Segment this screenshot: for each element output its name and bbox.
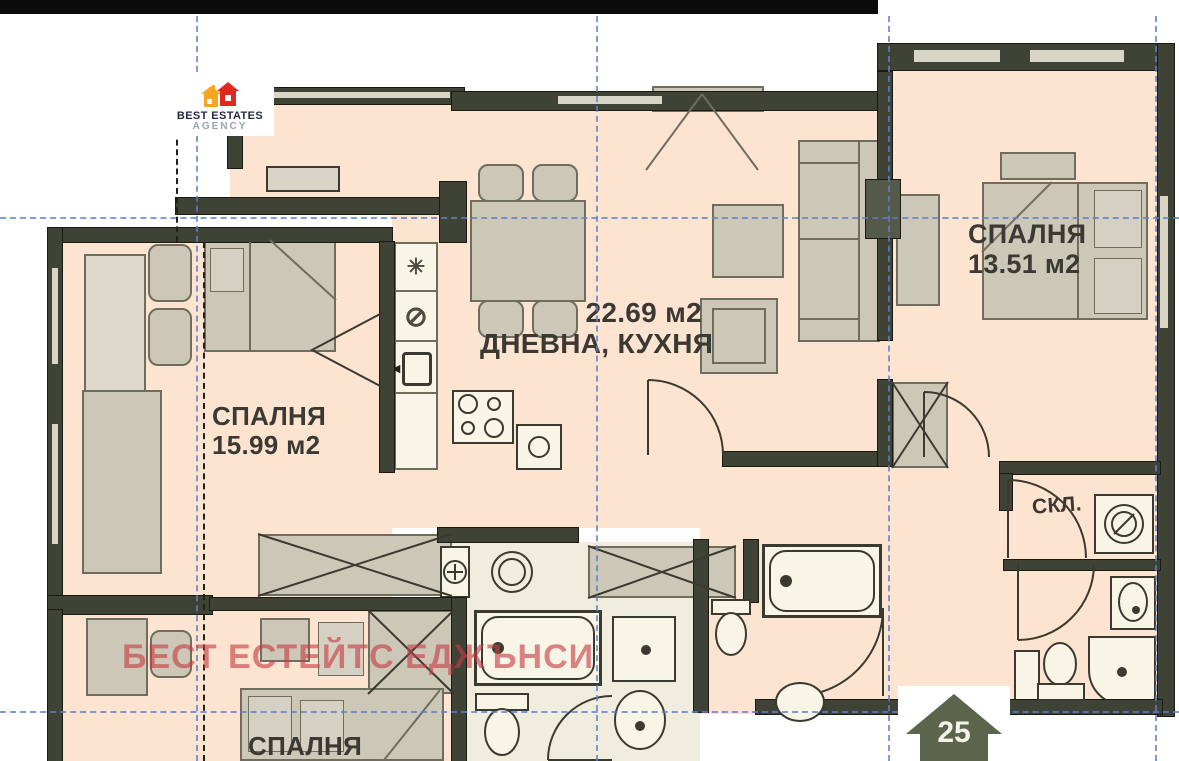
storage-top-wall xyxy=(1000,462,1160,474)
kitchen-cell-line xyxy=(394,290,438,292)
room-label-bedroom-bottom: СПАЛНЯ xyxy=(248,732,362,761)
stove xyxy=(452,390,514,444)
dining-chair xyxy=(532,164,578,202)
radiator xyxy=(266,166,340,192)
terrace-top-wall xyxy=(48,228,392,242)
shower xyxy=(1088,636,1156,706)
terrace-dashed-line xyxy=(203,242,205,761)
bedroom-living-divider xyxy=(380,242,394,472)
sofa-back-line xyxy=(858,142,860,340)
tv-stand xyxy=(896,194,940,306)
pillow xyxy=(210,248,244,292)
toilet-nook-wall xyxy=(744,540,758,602)
room-name: СПАЛНЯ xyxy=(212,402,326,431)
balcony-door-frame xyxy=(440,182,466,242)
room-label-bedroom-top-right: СПАЛНЯ 13.51 м2 xyxy=(968,220,1086,279)
hallway-wall xyxy=(723,452,885,466)
headboard-shelf xyxy=(1000,152,1076,180)
dining-chair xyxy=(478,164,524,202)
washing-machine xyxy=(1094,494,1154,554)
fridge-icon: ✳ xyxy=(394,254,438,280)
bath-divider-wall xyxy=(694,540,708,712)
room-area: 13.51 м2 xyxy=(968,250,1086,280)
kitchen-cell-line xyxy=(394,392,438,394)
bath-cabinet xyxy=(588,546,736,598)
agency-watermark: БЕСТ ЕСТЕЙТС ЕДЖЪНСИ xyxy=(122,638,594,677)
sofa-armrest-line xyxy=(800,318,860,320)
logo-text-line2: AGENCY xyxy=(193,121,248,132)
bedroom-bath-divider xyxy=(452,598,466,761)
dining-table xyxy=(470,200,586,302)
unit-marker: 25 xyxy=(898,686,1010,761)
terrace-table xyxy=(84,254,146,394)
bedroom-bottom-top-wall xyxy=(210,598,466,610)
kitchen-cell-line xyxy=(394,340,438,342)
agency-logo: BEST ESTATES AGENCY xyxy=(166,76,274,136)
room-label-storage: СКЛ. xyxy=(1031,492,1082,519)
balcony-bottom-wall xyxy=(176,198,466,214)
room-area: 15.99 м2 xyxy=(212,431,326,460)
unit-marker-number: 25 xyxy=(898,716,1010,750)
window xyxy=(1160,196,1168,328)
terrace-chair xyxy=(148,308,192,366)
kitchen-bath-wall xyxy=(438,528,578,542)
window xyxy=(558,96,662,104)
kitchen-sink-unit xyxy=(516,424,562,470)
terrace-bottom-wall xyxy=(48,596,212,614)
window xyxy=(914,50,1000,62)
window xyxy=(1030,50,1124,62)
grid-line-vertical xyxy=(1155,16,1157,761)
wardrobe xyxy=(892,382,948,468)
logo-houses-icon xyxy=(197,80,243,110)
pillow xyxy=(1094,258,1142,314)
kitchen-appliance-door xyxy=(402,352,432,386)
sofa-cushion-line xyxy=(800,238,860,240)
lounger xyxy=(82,390,162,574)
shower xyxy=(612,616,676,682)
left-outer-wall-lower xyxy=(48,610,62,761)
room-label-living-kitchen: 22.69 м2 ДНЕВНА, КУХНЯ xyxy=(480,298,702,360)
grid-line-vertical xyxy=(596,16,598,761)
window xyxy=(52,424,58,544)
wardrobe xyxy=(258,534,452,596)
sofa xyxy=(798,140,880,342)
floor-plan-canvas: ✳ ⊘ ◄ xyxy=(0,0,1179,761)
room-name: СПАЛНЯ xyxy=(968,220,1086,250)
bath-cabinet-small xyxy=(1014,650,1040,704)
balcony-railing xyxy=(250,92,450,98)
wall-column xyxy=(866,180,900,238)
room-name: ДНЕВНА, КУХНЯ xyxy=(480,329,702,360)
storage-left-wall xyxy=(1000,474,1012,510)
boundary-dashed-line xyxy=(176,130,178,242)
coffee-table xyxy=(712,204,784,278)
grid-line-vertical xyxy=(888,16,890,761)
storage-bath-divider xyxy=(1004,560,1160,570)
right-outer-wall xyxy=(1158,44,1174,716)
vanity-cabinet xyxy=(440,546,470,598)
hall-floor xyxy=(878,466,1002,712)
living-top-wall xyxy=(452,92,880,110)
window xyxy=(52,268,58,364)
armchair-seat xyxy=(712,308,766,364)
pillow xyxy=(1094,190,1142,248)
terrace-chair xyxy=(148,244,192,302)
room-label-bedroom-left: СПАЛНЯ 15.99 м2 xyxy=(212,402,326,459)
bathtub xyxy=(762,544,882,618)
bath-sink-cabinet xyxy=(1110,576,1156,630)
sofa-armrest-line xyxy=(800,162,860,164)
top-border-bar xyxy=(0,0,878,14)
room-area: 22.69 м2 xyxy=(480,298,702,329)
sink-icon: ⊘ xyxy=(394,300,438,333)
